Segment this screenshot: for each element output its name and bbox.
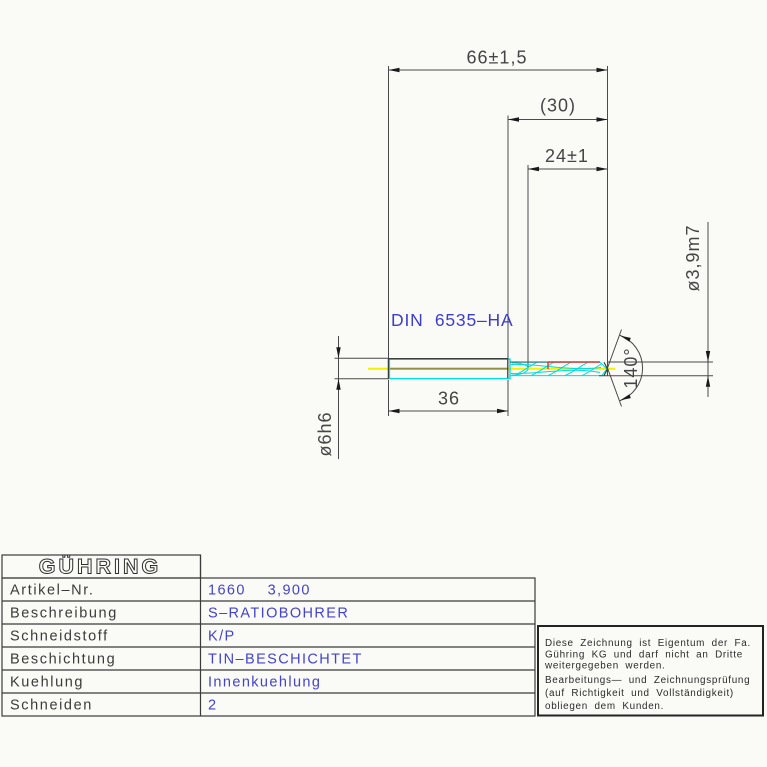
svg-text:Beschichtung: Beschichtung (10, 652, 116, 668)
svg-text:140°: 140° (621, 347, 641, 388)
svg-text:Bearbeitungs— und Zeichnungspr: Bearbeitungs— und Zeichnungsprüfung (545, 675, 750, 686)
svg-text:(30): (30) (540, 96, 576, 116)
svg-text:Gühring KG und darf nicht an D: Gühring KG und darf nicht an Dritte (545, 649, 743, 660)
svg-text:Diese Zeichnung ist Eigentum d: Diese Zeichnung ist Eigentum der Fa. (545, 638, 751, 649)
svg-text:24±1: 24±1 (545, 146, 589, 166)
svg-text:TIN–BESCHICHTET: TIN–BESCHICHTET (208, 652, 363, 668)
svg-text:Schneidstoff: Schneidstoff (10, 629, 109, 645)
svg-text:weitergegeben werden.: weitergegeben werden. (544, 661, 665, 672)
svg-text:obliegen dem Kunden.: obliegen dem Kunden. (545, 701, 664, 712)
svg-text:(auf Richtigkeit und Vollständ: (auf Richtigkeit und Vollständigkeit) (545, 688, 734, 699)
svg-text:Beschreibung: Beschreibung (10, 606, 118, 622)
svg-text:Innenkuehlung: Innenkuehlung (208, 675, 321, 691)
svg-text:2: 2 (208, 698, 217, 714)
svg-text:66±1,5: 66±1,5 (467, 48, 528, 68)
svg-text:DIN 6535–HA: DIN 6535–HA (391, 310, 513, 330)
svg-text:36: 36 (438, 389, 460, 409)
svg-text:S–RATIOBOHRER: S–RATIOBOHRER (208, 606, 349, 622)
svg-text:ø6h6: ø6h6 (315, 411, 335, 456)
svg-text:Schneiden: Schneiden (10, 698, 93, 714)
svg-text:ø3,9m7: ø3,9m7 (683, 224, 703, 291)
svg-text:Artikel–Nr.: Artikel–Nr. (10, 583, 94, 599)
svg-text:GÜHRING: GÜHRING (39, 554, 162, 579)
svg-text:Kuehlung: Kuehlung (10, 675, 84, 691)
svg-text:1660 3,900: 1660 3,900 (208, 583, 311, 599)
svg-text:K/P: K/P (208, 629, 236, 645)
